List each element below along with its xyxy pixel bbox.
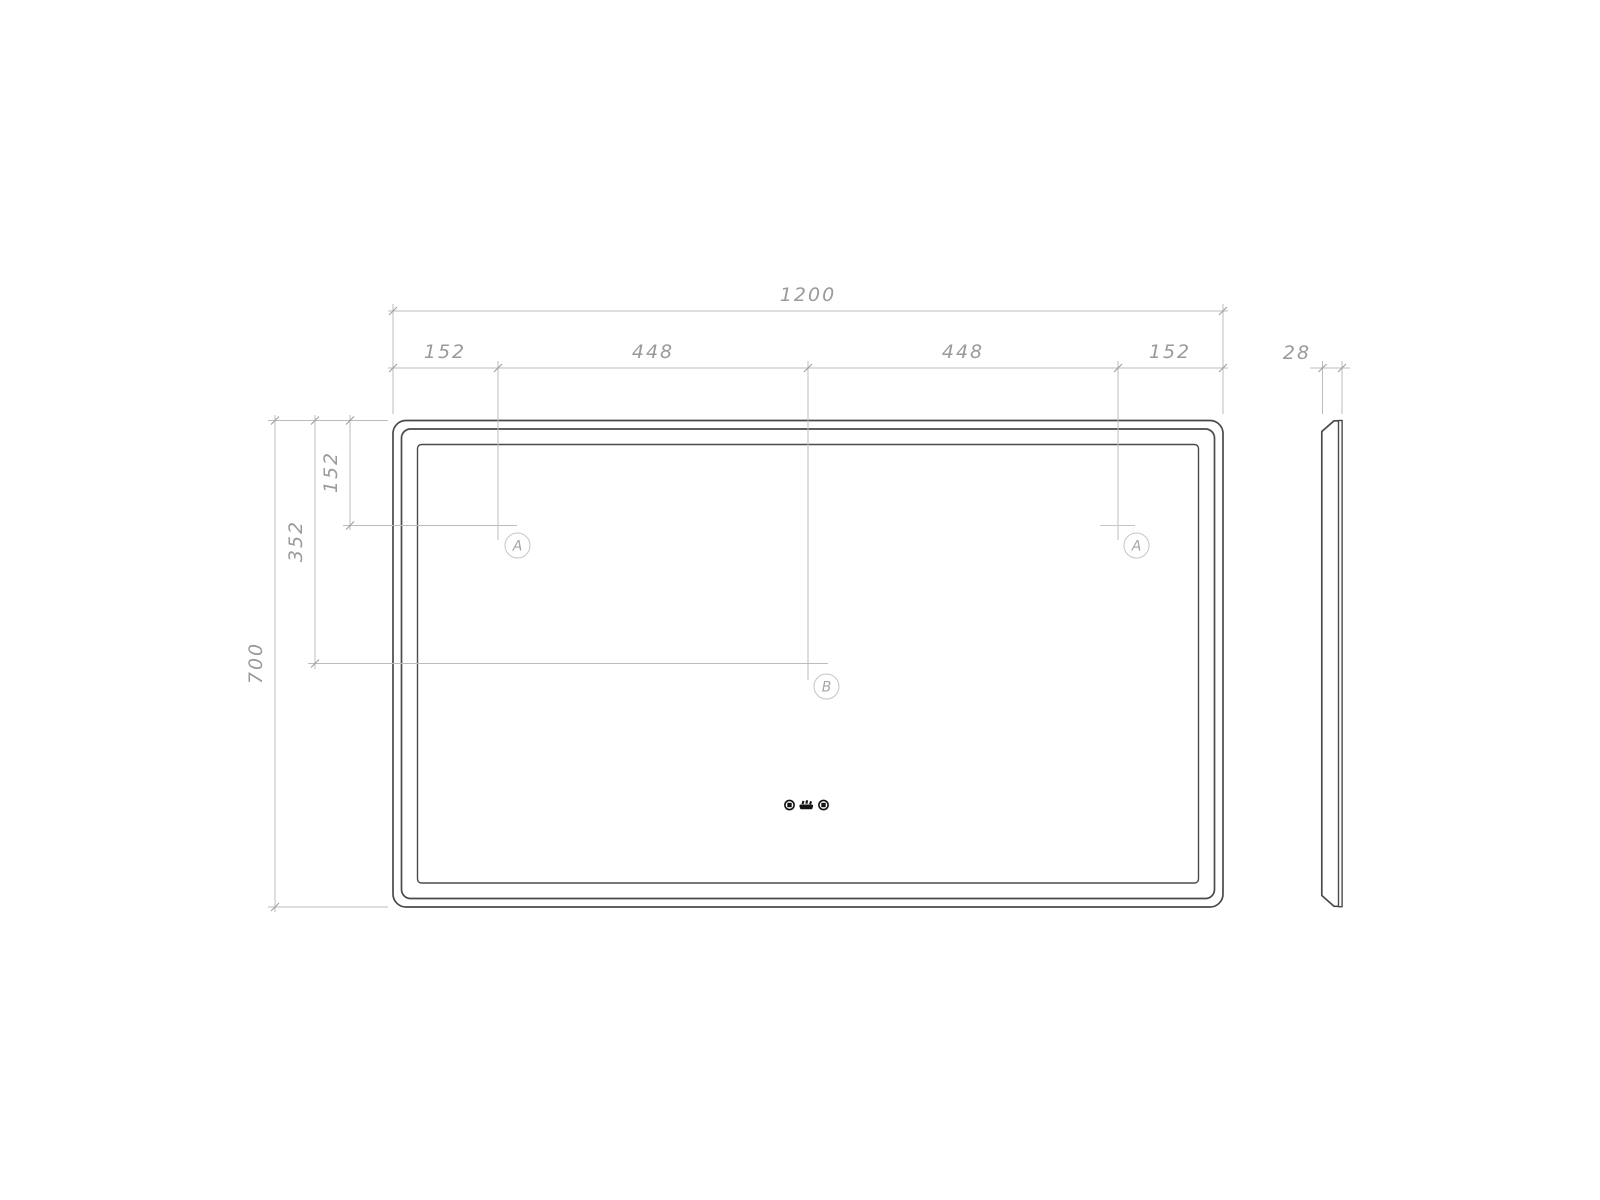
drawing-canvas: 1200 152 448 448 152 28 700 352 152 A A … <box>0 0 1600 1200</box>
marker-a-right: A <box>1100 526 1149 559</box>
dim-label-1200: 1200 <box>780 284 836 306</box>
dim-label-700: 700 <box>245 642 267 684</box>
technical-drawing: 1200 152 448 448 152 28 700 352 152 A A … <box>0 0 1600 1200</box>
marker-a-right-label: A <box>1131 539 1142 555</box>
side-glass-edge <box>1339 421 1343 907</box>
marker-b-label: B <box>822 680 832 696</box>
touch-control-icons <box>785 800 828 809</box>
touch-button-icon <box>819 800 828 809</box>
touch-button-icon <box>785 800 794 809</box>
side-body-outline <box>1322 421 1339 907</box>
dim-label-448-left: 448 <box>632 341 674 363</box>
position-markers: A A B <box>505 526 1149 700</box>
dim-label-28: 28 <box>1283 342 1311 364</box>
dim-label-152-right: 152 <box>1149 341 1191 363</box>
dim-label-152-offset: 152 <box>320 451 342 493</box>
dim-label-152-left: 152 <box>424 341 466 363</box>
dimension-lines <box>268 304 1350 912</box>
side-view <box>1322 421 1342 907</box>
dimension-labels: 1200 152 448 448 152 28 700 352 152 <box>245 284 1311 684</box>
dim-label-448-right: 448 <box>942 341 984 363</box>
anti-fog-icon <box>799 800 813 809</box>
dim-label-352: 352 <box>285 520 307 562</box>
marker-a-left: A <box>505 533 530 558</box>
marker-b: B <box>814 674 839 699</box>
marker-a-left-label: A <box>512 539 523 555</box>
